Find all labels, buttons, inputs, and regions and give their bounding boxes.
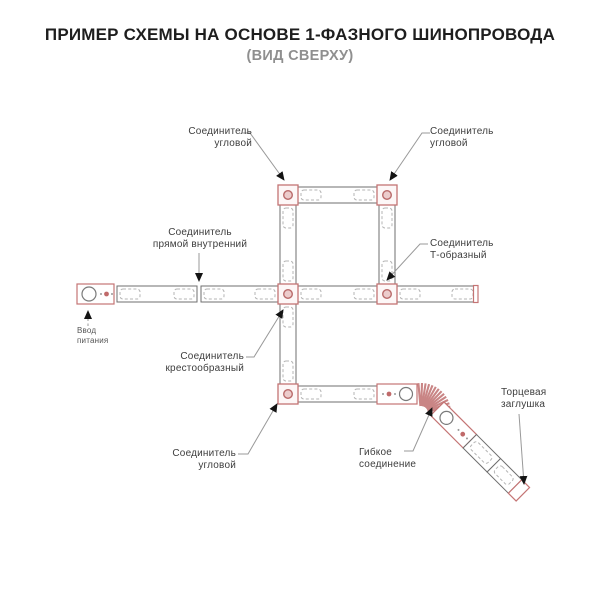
- label-power-input: Ввод питания: [77, 326, 108, 346]
- track-segment-d: [397, 286, 477, 302]
- leader-end-cap: [519, 414, 524, 484]
- label-straight-internal: Соединитель прямой внутренний: [119, 227, 281, 250]
- label-corner-bottom: Соединитель угловой: [116, 448, 236, 471]
- track-segment-a: [117, 286, 197, 302]
- label-t-shaped: Соединитель Т-образный: [430, 238, 494, 261]
- cross-connector: [278, 284, 298, 304]
- leader-corner-bottom: [238, 404, 277, 454]
- track-segment-b: [201, 286, 278, 302]
- corner-connector-top-right: [377, 185, 397, 205]
- track-bottom: [298, 386, 377, 402]
- label-cross: Соединитель крестообразный: [124, 351, 244, 374]
- t-connector: [377, 284, 397, 304]
- label-flexible: Гибкое соединение: [359, 447, 416, 470]
- diagram-canvas: [0, 0, 600, 600]
- corner-connector-bottom: [278, 384, 298, 404]
- diagonal-track: [431, 402, 530, 501]
- leader-flexible: [404, 408, 432, 451]
- diagram-page: ПРИМЕР СХЕМЫ НА ОСНОВЕ 1-ФАЗНОГО ШИНОПРО…: [0, 0, 600, 600]
- track-top: [298, 187, 377, 203]
- track-segment-c: [298, 286, 377, 302]
- label-corner-top-right: Соединитель угловой: [430, 126, 494, 149]
- track-lower-vertical: [280, 304, 296, 384]
- label-end-cap: Торцевая заглушка: [501, 387, 546, 410]
- leader-cross: [246, 310, 283, 357]
- track-left-vertical: [280, 205, 296, 284]
- corner-connector-top-left: [278, 185, 298, 205]
- leader-corner-top-right: [390, 133, 430, 180]
- label-corner-top-left: Соединитель угловой: [132, 126, 252, 149]
- lower-tracks: [280, 304, 417, 404]
- track-right-vertical: [379, 205, 395, 284]
- end-cap-right: [474, 286, 479, 303]
